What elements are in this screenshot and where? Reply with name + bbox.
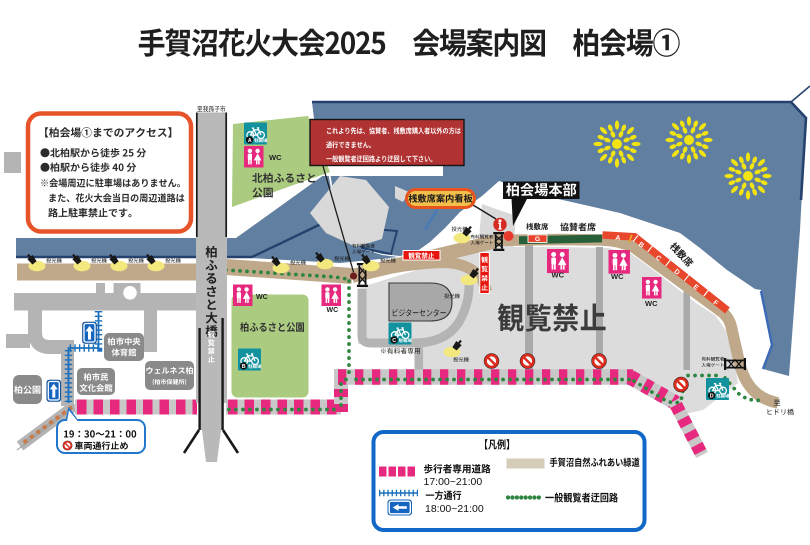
svg-text:WC: WC bbox=[256, 294, 268, 301]
svg-text:18:00~21:00: 18:00~21:00 bbox=[425, 503, 484, 515]
svg-text:17:00~21:00: 17:00~21:00 bbox=[424, 476, 483, 488]
svg-text:G: G bbox=[535, 236, 540, 243]
svg-text:WC: WC bbox=[269, 153, 282, 162]
svg-text:WC: WC bbox=[552, 271, 565, 280]
svg-text:WC: WC bbox=[645, 299, 658, 308]
svg-text:A: A bbox=[248, 138, 252, 144]
svg-text:C: C bbox=[392, 338, 396, 344]
svg-text:WC: WC bbox=[327, 307, 339, 314]
svg-text:D: D bbox=[710, 394, 714, 400]
svg-text:B: B bbox=[242, 364, 246, 370]
svg-text:WC: WC bbox=[611, 272, 624, 281]
